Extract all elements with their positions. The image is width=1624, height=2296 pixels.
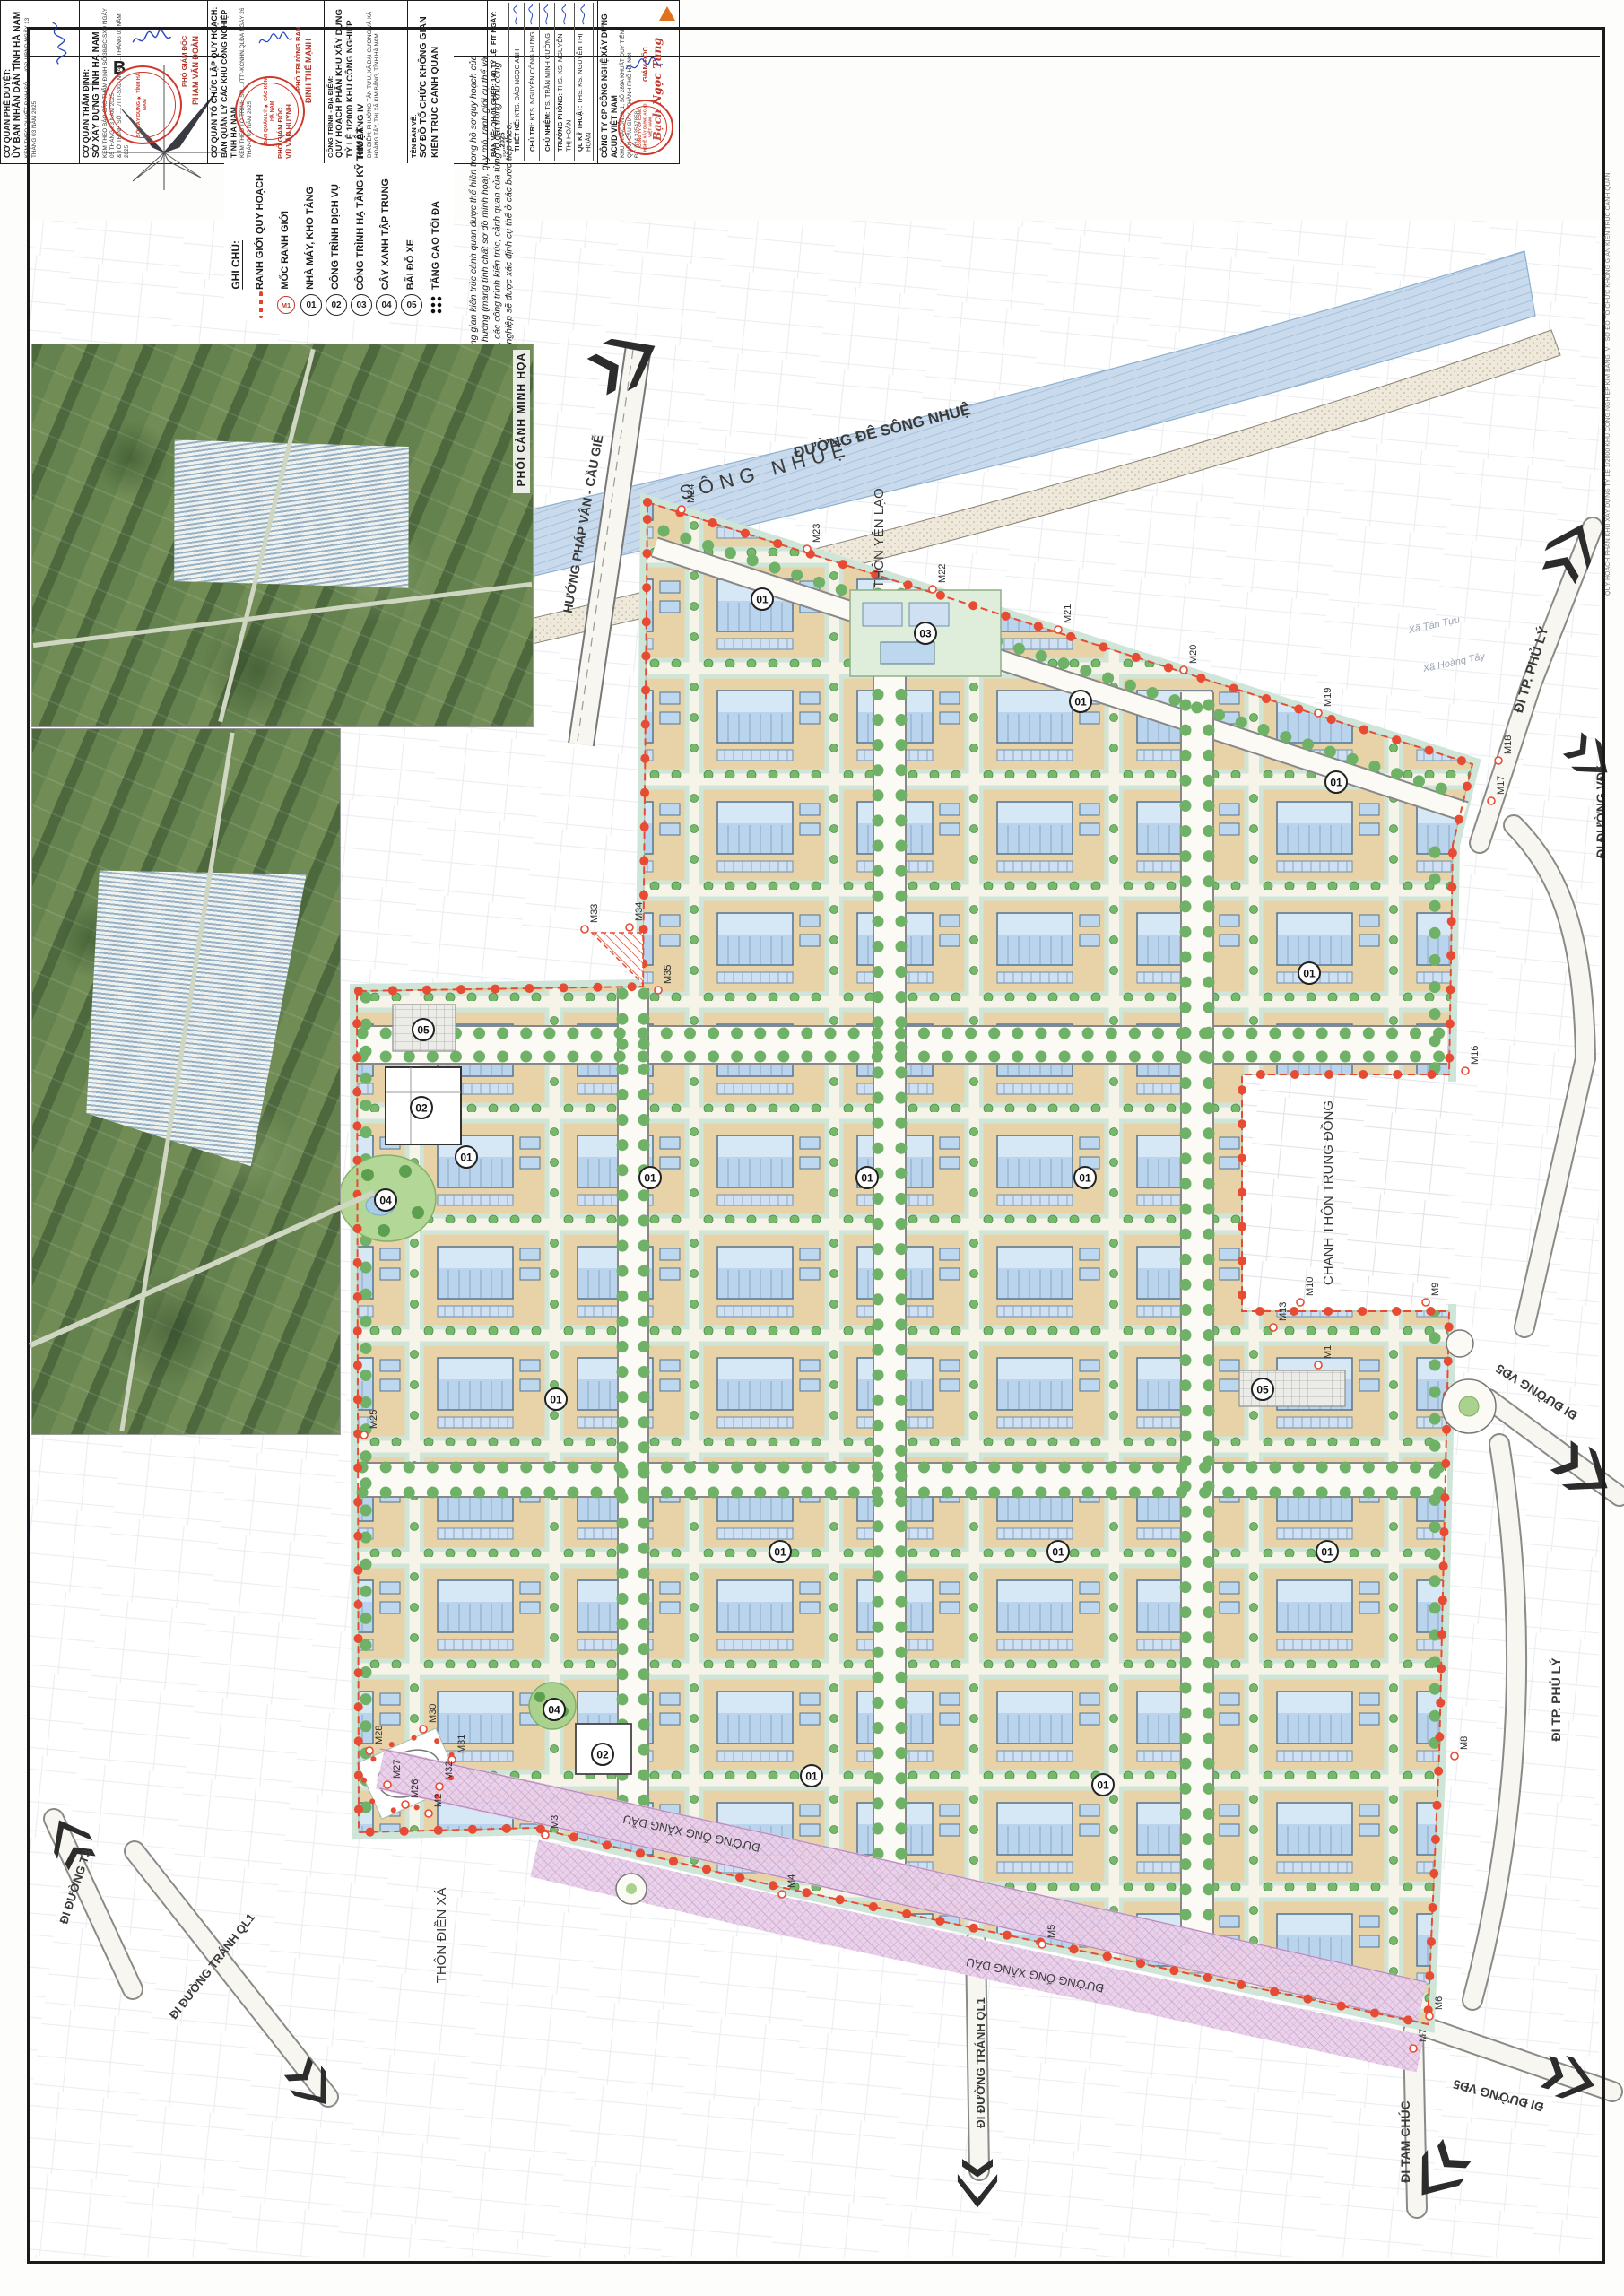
staff-row: CHỦ NHIỆM: TS. TRẦN MINH CƯỜNG bbox=[540, 3, 555, 161]
tb-project: CÔNG TRÌNH - ĐỊA ĐIỂM: QUY HOẠCH PHÂN KH… bbox=[325, 1, 408, 163]
zone-badge-code: 01 bbox=[1321, 1546, 1333, 1559]
legend-item-code: 05 bbox=[401, 294, 422, 316]
legend-height-label: TẦNG CAO TỐI ĐA bbox=[430, 201, 443, 290]
boundary-marker-label: M25 bbox=[369, 1410, 379, 1429]
legend-item-code: 03 bbox=[351, 294, 372, 316]
map-label: THÔN YÊN LẠO bbox=[872, 488, 887, 587]
boundary-marker-label: M35 bbox=[663, 965, 673, 984]
map-label: ĐI ĐƯỜNG VĐ5 bbox=[1593, 765, 1608, 858]
boundary-marker-dot bbox=[384, 1781, 391, 1788]
appraise-signer-name: PHẠM VĂN ĐOÀN bbox=[191, 6, 201, 105]
boundary-marker-label: M21 bbox=[1063, 604, 1073, 623]
appraise-heading: CƠ QUAN THẨM ĐỊNH: bbox=[82, 4, 91, 158]
boundary-marker-dot bbox=[420, 1726, 427, 1733]
boundary-marker-label: M9 bbox=[1430, 1283, 1441, 1296]
legend-item-label: NHÀ MÁY, KHO TÀNG bbox=[305, 187, 317, 290]
boundary-marker-label: M28 bbox=[374, 1726, 385, 1744]
map-label: ĐI ĐƯỜNG TRÁNH QL1 bbox=[974, 1997, 987, 2127]
zone-badge-code: 03 bbox=[919, 628, 932, 640]
legend-heading: GHI CHÚ: bbox=[230, 240, 243, 290]
boundary-marker-label: M3 bbox=[550, 1815, 560, 1829]
boundary-marker-dot bbox=[425, 1810, 432, 1817]
appraise-org: SỞ XÂY DỰNG TỈNH HÀ NAM bbox=[91, 4, 103, 158]
boundary-marker-label: M13 bbox=[1278, 1302, 1289, 1321]
drawing-name: SƠ ĐỒ TỔ CHỨC KHÔNG GIAN KIẾN TRÚC CẢNH … bbox=[418, 4, 441, 158]
organizer-signer2-name: VŨ VĂN HUỲNH bbox=[285, 73, 294, 159]
boundary-marker-dot bbox=[929, 586, 936, 593]
boundary-marker-label: M6 bbox=[1434, 1996, 1445, 2010]
legend-boundary-label: RANH GIỚI QUY HOẠCH bbox=[255, 174, 267, 290]
organizer-signer2-title: PHÓ GIÁM ĐỐC bbox=[276, 78, 284, 159]
legend-item-label: BÃI ĐỖ XE bbox=[405, 239, 418, 290]
zone-badge-code: 01 bbox=[460, 1152, 473, 1164]
boundary-marker-dot bbox=[366, 1747, 373, 1754]
boundary-marker-label: M10 bbox=[1305, 1277, 1316, 1296]
boundary-marker-dot bbox=[678, 506, 685, 513]
aerial-photo-top bbox=[31, 344, 534, 727]
organizer-signer-name: ĐINH THẾ MẠNH bbox=[304, 4, 314, 103]
organizer-heading: CƠ QUAN TỔ CHỨC LẬP QUY HOẠCH: bbox=[210, 4, 220, 158]
aerial-photo-bottom bbox=[31, 728, 341, 1435]
zone-badge-code: 04 bbox=[379, 1195, 392, 1207]
tb-company: CÔNG TY CP CÔNG NGHỆ XÂY DỰNG ACUD VIỆT … bbox=[598, 1, 679, 163]
perspective-caption: PHỐI CẢNH MINH HỌA bbox=[513, 350, 530, 493]
boundary-marker-label: M23 bbox=[812, 524, 822, 543]
zone-badge-code: 01 bbox=[1074, 696, 1087, 709]
boundary-marker-dot bbox=[542, 1831, 549, 1839]
boundary-marker-label: M2 bbox=[433, 1794, 444, 1807]
boundary-marker-label: M1 bbox=[1323, 1345, 1333, 1359]
staff-row: QL KỸ THUẬT: THS. KS. NGUYỄN THỊ HOÀN bbox=[575, 3, 595, 161]
boundary-marker-label: M26 bbox=[410, 1779, 421, 1798]
staff-name: KTS. NGUYỄN CÔNG HƯNG bbox=[528, 31, 536, 120]
boundary-line-symbol bbox=[259, 291, 263, 318]
zone-badge-code: 01 bbox=[774, 1546, 786, 1559]
staff-name: KTS. ĐÀO NGỌC ANH bbox=[513, 49, 521, 117]
drawing-sheet: SÔNG NHUỆĐƯỜNG ĐÊ SÔNG NHUỆHƯỚNG PHÁP VÂ… bbox=[0, 0, 1624, 2296]
zone-badge-code: 05 bbox=[1256, 1384, 1269, 1396]
boundary-marker-label: M17 bbox=[1496, 776, 1507, 795]
drawing-heading: TÊN BẢN VẼ: bbox=[410, 4, 418, 158]
staff-role: CHỦ NHIỆM: bbox=[543, 112, 551, 152]
boundary-marker-dot bbox=[803, 545, 811, 552]
project-location: ĐỊA ĐIỂM: PHƯỜNG TÂN TỰU, XÃ ĐẠI CƯƠNG V… bbox=[367, 4, 381, 158]
boundary-marker-label: M8 bbox=[1459, 1736, 1470, 1750]
boundary-marker-label: M16 bbox=[1470, 1046, 1481, 1065]
boundary-marker-dot bbox=[1297, 1299, 1304, 1306]
director-title: GIÁM ĐỐC bbox=[641, 10, 649, 82]
boundary-marker-dot bbox=[626, 924, 633, 931]
company-name: CÔNG TY CP CÔNG NGHỆ XÂY DỰNG ACUD VIỆT … bbox=[600, 4, 620, 158]
boundary-marker-dot bbox=[360, 1431, 368, 1439]
boundary-marker-dot bbox=[1488, 797, 1495, 804]
approve-org: ỦY BAN NHÂN DÂN TỈNH HÀ NAM bbox=[13, 4, 24, 158]
tb-drawing: TÊN BẢN VẼ: SƠ ĐỒ TỔ CHỨC KHÔNG GIAN KIẾ… bbox=[408, 1, 488, 163]
approve-ref: KÈM THEO QUYẾT ĐỊNH SỐ ...../QĐ-UBND NGÀ… bbox=[24, 4, 39, 158]
zone-badge-code: 01 bbox=[1052, 1546, 1064, 1559]
zone-badge-code: 01 bbox=[1079, 1172, 1091, 1185]
boundary-marker-label: M22 bbox=[937, 564, 948, 583]
map-label: ĐI TAM CHÚC bbox=[1397, 2100, 1412, 2183]
boundary-marker-dot bbox=[1038, 1941, 1046, 1948]
staff-role: CHỦ TRÌ: bbox=[528, 123, 536, 152]
village-enclave bbox=[1243, 1075, 1448, 1310]
organizer-signer-title: PHÓ TRƯỞNG BAN bbox=[294, 4, 302, 91]
boundary-marker-dot bbox=[778, 1891, 786, 1898]
boundary-marker-dot bbox=[1315, 709, 1322, 717]
boundary-marker-dot bbox=[1426, 2013, 1433, 2020]
boundary-marker-dot bbox=[581, 926, 588, 933]
boundary-marker-label: M7 bbox=[1418, 2029, 1429, 2042]
boundary-marker-dot bbox=[655, 987, 662, 994]
legend-item-code: 04 bbox=[376, 294, 397, 316]
edge-reference-strip: QUY HOẠCH PHÂN KHU XÂY DỰNG TỶ LỆ 1/2000… bbox=[1605, 57, 1621, 613]
tb-appraise: CƠ QUAN THẨM ĐỊNH: SỞ XÂY DỰNG TỈNH HÀ N… bbox=[80, 1, 208, 163]
staff-role: QL KỸ THUẬT: bbox=[576, 106, 584, 152]
boundary-marker-label: M19 bbox=[1323, 688, 1333, 707]
zone-badge-code: 04 bbox=[548, 1704, 560, 1717]
boundary-marker-dot bbox=[1410, 2045, 1417, 2052]
drawing-meta: BẢN VẼ: QH-05 GHÉP: 140 TỶ LỆ: FIT NGÀY:… bbox=[490, 3, 507, 157]
organizer-stamp-text: BAN QUẢN LÝ ★ CÁC KCN HÀ NAM bbox=[264, 78, 276, 144]
staff-role: TRƯỞNG PHÒNG: bbox=[556, 93, 564, 152]
company-stamp: CÔNG TY CP CÔNG NGHỆ XÂY DỰNG ACUD VIỆT … bbox=[618, 100, 673, 155]
staff-name: TS. TRẦN MINH CƯỜNG bbox=[543, 33, 551, 110]
appraise-stamp-text: SỞ XÂY DỰNG ★ TỈNH HÀ NAM bbox=[136, 67, 149, 143]
staff-row: THIẾT KẾ: KTS. ĐÀO NGỌC ANH bbox=[509, 3, 525, 161]
marker-symbol: M1 bbox=[277, 296, 295, 314]
legend-marker-label: MỐC RANH GIỚI bbox=[280, 211, 292, 290]
boundary-marker-dot bbox=[1180, 666, 1187, 674]
perspective-caption-text: PHỐI CẢNH MINH HỌA bbox=[515, 352, 528, 486]
tb-meta-staff: BẢN VẼ: QH-05 GHÉP: 140 TỶ LỆ: FIT NGÀY:… bbox=[488, 1, 597, 163]
boundary-marker-label: M31 bbox=[456, 1735, 467, 1753]
staff-role: THIẾT KẾ: bbox=[513, 119, 521, 152]
boundary-marker-label: M27 bbox=[392, 1760, 403, 1779]
boundary-marker-dot bbox=[1270, 1324, 1277, 1331]
boundary-marker-label: M33 bbox=[589, 904, 600, 923]
zone-badge-code: 01 bbox=[550, 1394, 562, 1406]
zone-badge-code: 01 bbox=[805, 1770, 818, 1783]
zone-badge-code: 01 bbox=[1330, 777, 1342, 789]
boundary-marker-dot bbox=[1422, 1299, 1429, 1306]
map-label: CHANH THÔN TRUNG ĐỒNG bbox=[1320, 1100, 1336, 1285]
boundary-marker-label: M30 bbox=[428, 1704, 439, 1723]
appraise-signer-title: PHÓ GIÁM ĐỐC bbox=[180, 6, 188, 87]
zone-badge-code: 01 bbox=[1303, 968, 1316, 980]
legend-item-label: CÂY XANH TẬP TRUNG bbox=[380, 178, 393, 290]
tb-organizer: CƠ QUAN TỔ CHỨC LẬP QUY HOẠCH: BAN QUẢN … bbox=[208, 1, 325, 163]
boundary-marker-label: M18 bbox=[1503, 735, 1514, 754]
zone-badge-code: 02 bbox=[596, 1749, 609, 1761]
map-label: THÔN ĐIỀN XÁ bbox=[434, 1888, 449, 1984]
boundary-marker-label: M5 bbox=[1046, 1925, 1057, 1938]
project-heading: CÔNG TRÌNH - ĐỊA ĐIỂM: bbox=[326, 4, 334, 158]
organizer-org: BAN QUẢN LÝ CÁC KHU CÔNG NGHIỆP TỈNH HÀ … bbox=[220, 4, 239, 158]
boundary-marker-label: M4 bbox=[786, 1874, 797, 1888]
zone-badge-code: 01 bbox=[756, 594, 769, 606]
tb-approve: CƠ QUAN PHÊ DUYỆT: ỦY BAN NHÂN DÂN TỈNH … bbox=[1, 1, 80, 163]
staff-row: CHỦ TRÌ: KTS. NGUYỄN CÔNG HƯNG bbox=[525, 3, 540, 161]
boundary-marker-dot bbox=[1315, 1361, 1322, 1369]
edge-reference-text: QUY HOẠCH PHÂN KHU XÂY DỰNG TỶ LỆ 1/2000… bbox=[1605, 57, 1613, 596]
company-stamp-text: CÔNG TY CP CÔNG NGHỆ XÂY DỰNG ACUD VIỆT … bbox=[638, 101, 653, 153]
staff-row: TRƯỞNG PHÒNG: THS. KS. NGUYỄN THỊ HOÀN bbox=[555, 3, 575, 161]
boundary-marker-label: M20 bbox=[1188, 645, 1199, 664]
legend-item-code: 02 bbox=[326, 294, 347, 316]
boundary-marker-dot bbox=[1495, 757, 1502, 764]
appraise-stamp: SỞ XÂY DỰNG ★ TỈNH HÀ NAM bbox=[103, 65, 182, 144]
boundary-marker-label: M24 bbox=[686, 484, 697, 503]
height-dots-symbol bbox=[430, 296, 443, 314]
boundary-marker-dot bbox=[1055, 626, 1062, 633]
zone-badge-code: 01 bbox=[644, 1172, 656, 1185]
legend-item-code: 01 bbox=[300, 294, 322, 316]
zone-badge-code: 02 bbox=[415, 1102, 428, 1115]
boundary-marker-dot bbox=[1451, 1752, 1458, 1760]
title-block: CƠ QUAN PHÊ DUYỆT: ỦY BAN NHÂN DÂN TỈNH … bbox=[0, 0, 680, 164]
boundary-marker-dot bbox=[402, 1801, 409, 1808]
legend-item-label: CÔNG TRÌNH DỊCH VỤ bbox=[330, 184, 343, 290]
zone-badge-code: 01 bbox=[861, 1172, 873, 1185]
zone-badge-code: 01 bbox=[1097, 1779, 1109, 1792]
boundary-marker-dot bbox=[436, 1783, 443, 1790]
boundary-marker-label: M34 bbox=[634, 902, 645, 921]
boundary-marker-dot bbox=[1462, 1067, 1469, 1074]
zone-badge-code: 05 bbox=[417, 1024, 430, 1037]
project-name: QUY HOẠCH PHÂN KHU XÂY DỰNG TỶ LỆ 1/2000… bbox=[334, 4, 367, 158]
boundary-marker-label: M32 bbox=[444, 1761, 455, 1780]
map-label: ĐI TP. PHỦ LÝ bbox=[1548, 1657, 1563, 1742]
